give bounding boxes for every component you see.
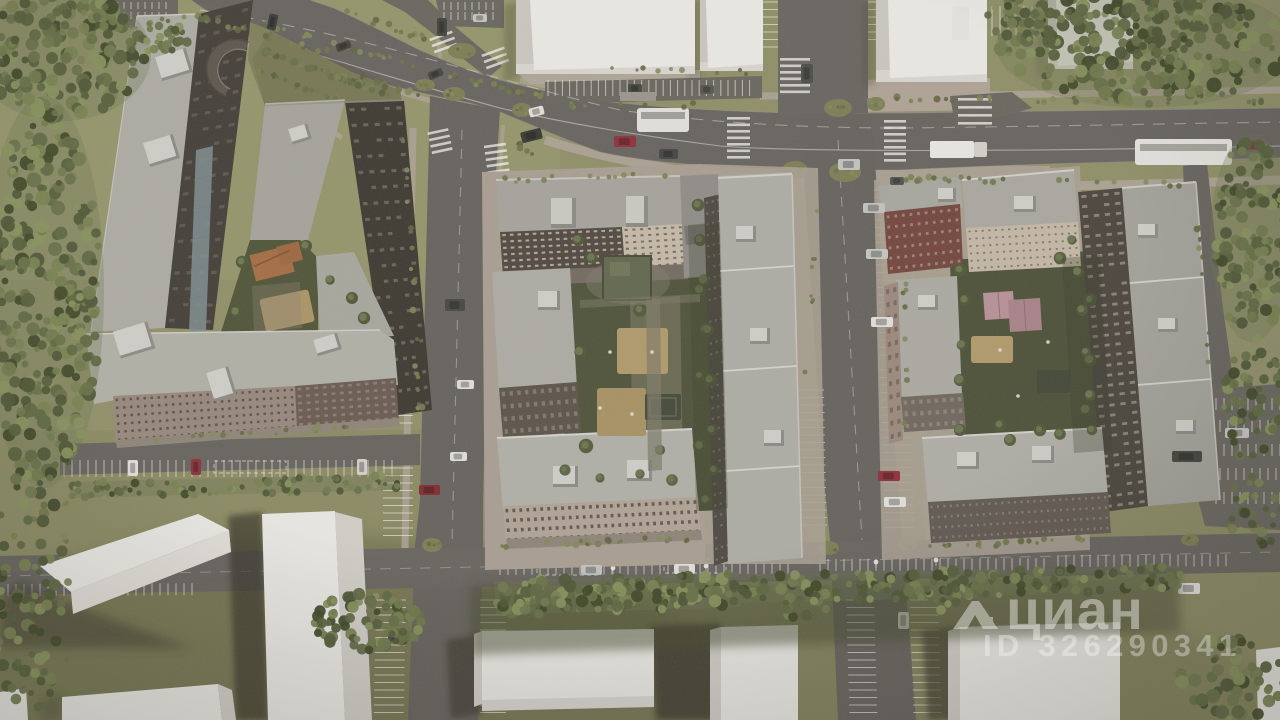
svg-text:ID 326290341: ID 326290341 [983, 628, 1241, 663]
